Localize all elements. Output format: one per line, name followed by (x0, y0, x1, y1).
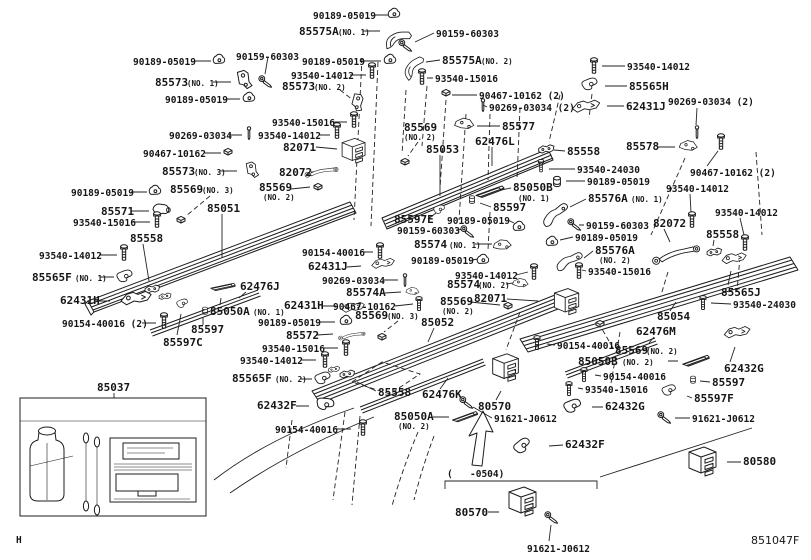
bracket-assembly-icon (372, 258, 395, 268)
part-number-label: 93540-15016 (262, 344, 325, 355)
part-number-label: 82071 (283, 141, 316, 154)
part-number-label: 85572 (286, 329, 319, 342)
part-number-label: 80570 (455, 506, 488, 519)
part-number-label: 93540-15016 (585, 385, 648, 396)
part-number-label: 85574A (346, 286, 386, 299)
part-number-label: 85574 (447, 278, 480, 291)
bolt-icon (742, 235, 749, 250)
nut-icon (177, 216, 185, 223)
nut-icon (596, 320, 604, 327)
part-number-label: 62431J (626, 100, 666, 113)
part-number-label: 91621-J0612 (527, 544, 590, 555)
part-number-label: 90154-40016 (603, 372, 666, 383)
washer-kit-box (20, 398, 206, 516)
part-number-label: 62431H (284, 299, 324, 312)
part-number-label: 62431H (60, 294, 100, 307)
nut-icon (314, 183, 322, 190)
part-number-label: 85052 (421, 316, 454, 329)
nut-icon (442, 89, 450, 96)
stud-pin-icon (403, 274, 406, 287)
pivot-bracket-icon (349, 92, 368, 112)
bolt-icon (121, 245, 128, 260)
part-number-label: 85574 (414, 238, 447, 251)
part-number-label: 85597C (163, 336, 203, 349)
part-number-label: 85050B (513, 181, 553, 194)
clip-icon (340, 370, 354, 378)
part-number-label: 85565F (232, 372, 272, 385)
part-number-label: 62476M (636, 325, 676, 338)
part-number-label: 85054 (657, 310, 690, 323)
bracket-plate-icon (492, 238, 511, 250)
part-number-label: 80580 (743, 455, 776, 468)
bracket-plate-icon (679, 141, 697, 151)
part-number-label: 93540-14012 (666, 184, 729, 195)
bolt-icon (581, 368, 587, 382)
part-note-label: (NO. 2) (314, 83, 346, 92)
part-number-label: 85569 (355, 309, 388, 322)
diagram-code: 851047F (751, 534, 799, 547)
part-number-label: 85565H (629, 80, 669, 93)
linkage-rod-icon (651, 246, 700, 265)
clamp-bracket-icon (512, 437, 532, 454)
part-note-label: (NO. 3) (387, 312, 419, 321)
clamp-bracket-icon (582, 78, 597, 90)
part-number-label: 93540-24030 (733, 300, 796, 311)
clamp-icon (149, 185, 160, 194)
part-number-label: 85573 (282, 80, 315, 93)
retainer-strip-icon (476, 186, 504, 197)
clamp-icon (477, 254, 488, 263)
part-number-label: 85597 (493, 201, 526, 214)
part-number-label: 93540-15016 (272, 118, 335, 129)
pivot-bracket-icon (246, 162, 258, 177)
bracket-plate-icon (455, 118, 474, 128)
clip-icon (539, 145, 554, 153)
part-number-label: 62432F (257, 399, 297, 412)
part-number-label: 93540-24030 (577, 165, 640, 176)
bolt-icon (369, 63, 376, 78)
part-number-label: 85558 (567, 145, 600, 158)
bolt-icon (576, 263, 583, 278)
motor-icon (554, 289, 578, 315)
screw-icon (568, 219, 581, 231)
part-note-label: (NO. 1) (631, 195, 663, 204)
part-number-label: 90467-10162 (143, 149, 206, 160)
part-number-label: 80570 (478, 400, 511, 413)
part-number-label: 93540-14012 (627, 62, 690, 73)
bracket-assembly-icon (121, 291, 151, 304)
clip-icon (328, 366, 339, 372)
part-number-label: 85576A (588, 192, 628, 205)
bracket-assembly-icon (573, 100, 600, 112)
bolt-icon (360, 420, 367, 435)
nut-icon (378, 333, 386, 340)
part-number-label: 90189-05019 (587, 177, 650, 188)
bracket-plate-icon (406, 287, 419, 294)
wiper-arm-icon (401, 56, 428, 81)
part-note-label: (NO. 1) (187, 79, 219, 88)
part-number-label: 90189-05019 (133, 57, 196, 68)
part-number-label: 90189-05019 (165, 95, 228, 106)
bottle-icon (30, 427, 73, 501)
part-number-label: 91621-J0612 (692, 414, 755, 425)
bracket-assembly-icon (722, 253, 746, 264)
part-number-label: 62476L (475, 135, 515, 148)
grommet-icon (691, 376, 696, 383)
part-number-label: 93540-15016 (435, 74, 498, 85)
motor-icon (689, 447, 716, 476)
part-note-label: (NO. 1) (338, 28, 370, 37)
part-number-label: 85571 (101, 205, 134, 218)
part-number-label: 90154-40016 (275, 425, 338, 436)
clamp-icon (388, 8, 399, 17)
clamp-icon (243, 92, 254, 101)
part-number-label: 85565J (721, 286, 761, 299)
part-note-label: (NO. 2) (481, 57, 513, 66)
part-number-label: 62476J (240, 280, 280, 293)
bolt-icon (591, 58, 598, 73)
part-number-label: 93540-15016 (73, 218, 136, 229)
part-number-label: 82072 (279, 166, 312, 179)
part-number-label: 85577 (502, 120, 535, 133)
clamp-icon (384, 54, 395, 63)
part-number-label: 85575A (299, 25, 339, 38)
clamp-bracket-icon (177, 299, 188, 307)
part-number-label: 90189-05019 (411, 256, 474, 267)
part-number-label: 85053 (426, 143, 459, 156)
part-number-label: 85565F (32, 271, 72, 284)
bolt-icon (718, 134, 725, 149)
motor-icon (493, 354, 519, 382)
part-number-label: 85578 (626, 140, 659, 153)
part-note-label: (NO. 2) (599, 256, 631, 265)
grommet-icon (469, 196, 474, 204)
part-note-label: (NO. 2) (404, 133, 436, 142)
part-number-label: 85051 (207, 202, 240, 215)
part-number-label: 85037 (97, 381, 130, 394)
bolt-icon (531, 264, 538, 279)
bolt-icon (689, 212, 696, 227)
clamp-bracket-icon (662, 385, 675, 395)
bracket-assembly-icon (724, 327, 750, 338)
clamp-bracket-icon (315, 372, 330, 384)
stud-pin-icon (247, 127, 250, 140)
part-number-label: 90189-05019 (575, 233, 638, 244)
part-number-label: 90154-40016 (2) (62, 319, 148, 330)
part-number-label: 90269-03034 (2) (489, 103, 575, 114)
linkage-rod-icon (339, 332, 366, 340)
part-note-label: (NO. 1) (449, 241, 481, 250)
part-number-label: 90467-10162 (2) (690, 168, 776, 179)
part-number-label: 62432F (565, 438, 605, 451)
bolt-icon (343, 340, 350, 355)
part-note-label: (NO. 2) (398, 422, 430, 431)
date-range-label: ( (447, 469, 453, 480)
bolt-icon (416, 297, 422, 311)
part-number-label: 93540-14012 (240, 356, 303, 367)
part-number-label: 90269-03034 (2) (668, 97, 754, 108)
part-note-label: (NO. 1) (75, 274, 107, 283)
page-marker: H (16, 535, 22, 546)
part-note-label: (NO. 2) (442, 307, 474, 316)
part-number-label: 90159-60303 (397, 226, 460, 237)
part-number-label: 90159-60303 (436, 29, 499, 40)
direction-arrow-icon (469, 411, 493, 466)
clamp-icon (340, 315, 351, 324)
part-number-label: 93540-15016 (588, 267, 651, 278)
screw-icon (461, 226, 474, 238)
part-number-label: 85573 (162, 165, 195, 178)
part-number-label: 90159-60303 (586, 221, 649, 232)
bolt-icon (566, 382, 572, 396)
retainer-strip-icon (452, 412, 477, 422)
clip-icon (159, 293, 171, 299)
bolt-icon (377, 243, 384, 258)
part-number-label: 90189-05019 (302, 57, 365, 68)
part-number-label: 85558 (130, 232, 163, 245)
part-number-label: 90159-60303 (236, 52, 299, 63)
part-note-label: (NO. 3) (194, 168, 226, 177)
motor-icon (342, 138, 365, 163)
retainer-strip-icon (683, 355, 710, 366)
part-number-label: 85569 (170, 183, 203, 196)
instruction-sheet (110, 438, 196, 502)
screw-icon (399, 40, 412, 52)
part-note-label: (NO. 2) (646, 347, 678, 356)
screw-icon (658, 412, 671, 424)
part-number-label: 91621-J0612 (494, 414, 557, 425)
bolt-icon (700, 296, 706, 310)
part-number-label: 62432G (605, 400, 645, 413)
bolt-icon (154, 212, 161, 227)
retainer-strip-icon (211, 280, 236, 293)
part-number-label: 85569 (615, 344, 648, 357)
part-number-label: 85575A (442, 54, 482, 67)
bolt-icon (419, 69, 426, 84)
part-number-label: 90189-05019 (313, 11, 376, 22)
part-number-label: 90154-40016 (557, 341, 620, 352)
clamp-bracket-icon (434, 205, 445, 213)
part-number-label: 90189-05019 (71, 188, 134, 199)
swab-icon (83, 433, 88, 511)
part-number-label: 90154-40016 (302, 248, 365, 259)
part-note-label: (NO. 3) (202, 186, 234, 195)
part-number-label: 62476K (422, 388, 462, 401)
nut-icon (224, 148, 232, 155)
clamp-bracket-icon (117, 270, 132, 282)
part-number-label: 90467-10162 (2) (479, 91, 565, 102)
part-note-label: (NO. 1) (253, 308, 285, 317)
motor-icon (509, 487, 536, 516)
part-note-label: (NO. 2) (478, 281, 510, 290)
wiper-parts-diagram: 90189-05019 85575A (NO. 1) 90159-60303 9… (0, 0, 811, 560)
part-number-label: 90269-03034 (169, 131, 232, 142)
clamp-icon (213, 54, 224, 63)
part-number-label: 90189-05019 (258, 318, 321, 329)
part-note-label: (NO. 2) (275, 375, 307, 384)
clip-icon (707, 248, 721, 256)
grommet-icon (554, 176, 561, 186)
part-note-label: (NO. 2) (263, 193, 295, 202)
part-note-label: (NO. 2) (622, 358, 654, 367)
bolt-icon (351, 112, 358, 127)
pivot-bracket-icon (237, 70, 252, 88)
part-number-label: 93540-14012 (39, 251, 102, 262)
clamp-icon (513, 221, 524, 230)
clamp-bracket-icon (564, 399, 581, 412)
part-number-label: 85597 (191, 323, 224, 336)
part-number-label: 82071 (474, 292, 507, 305)
part-number-label: 85558 (706, 228, 739, 241)
hook-bracket-icon (544, 204, 568, 227)
part-number-label: 85597F (694, 392, 734, 405)
part-number-label: 93540-14012 (715, 208, 778, 219)
part-number-label: 85597 (712, 376, 745, 389)
screw-icon (545, 512, 558, 524)
date-range-label: -0504) (470, 469, 504, 480)
part-number-label: 62432G (724, 362, 764, 375)
screw-icon (460, 397, 473, 409)
part-number-label: 85573 (155, 76, 188, 89)
part-number-label: 85558 (378, 386, 411, 399)
part-number-label: 85597E (394, 213, 434, 226)
nut-icon (401, 158, 409, 165)
swab-icon (94, 437, 99, 515)
part-number-label: 62431J (308, 260, 348, 273)
screw-icon (259, 76, 272, 88)
hook-bracket-icon (556, 249, 582, 275)
part-number-label: 85050B (578, 355, 618, 368)
stud-pin-icon (695, 126, 698, 139)
part-number-label: 85050A (210, 305, 250, 318)
clamp-icon (546, 236, 557, 245)
part-number-label: 82072 (653, 217, 686, 230)
